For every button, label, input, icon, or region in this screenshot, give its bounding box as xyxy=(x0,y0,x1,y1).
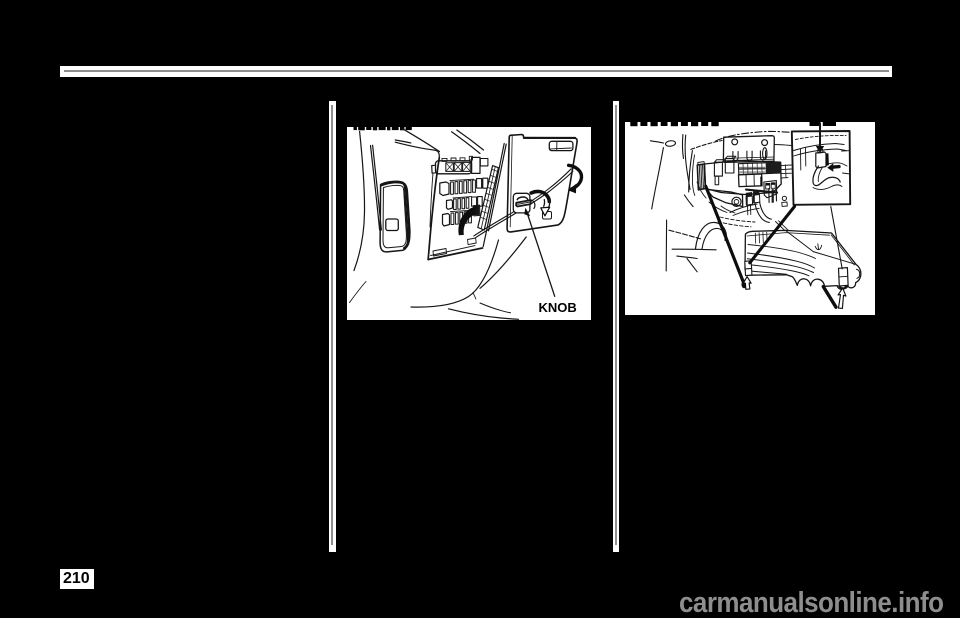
svg-text:KNOB: KNOB xyxy=(539,300,577,315)
